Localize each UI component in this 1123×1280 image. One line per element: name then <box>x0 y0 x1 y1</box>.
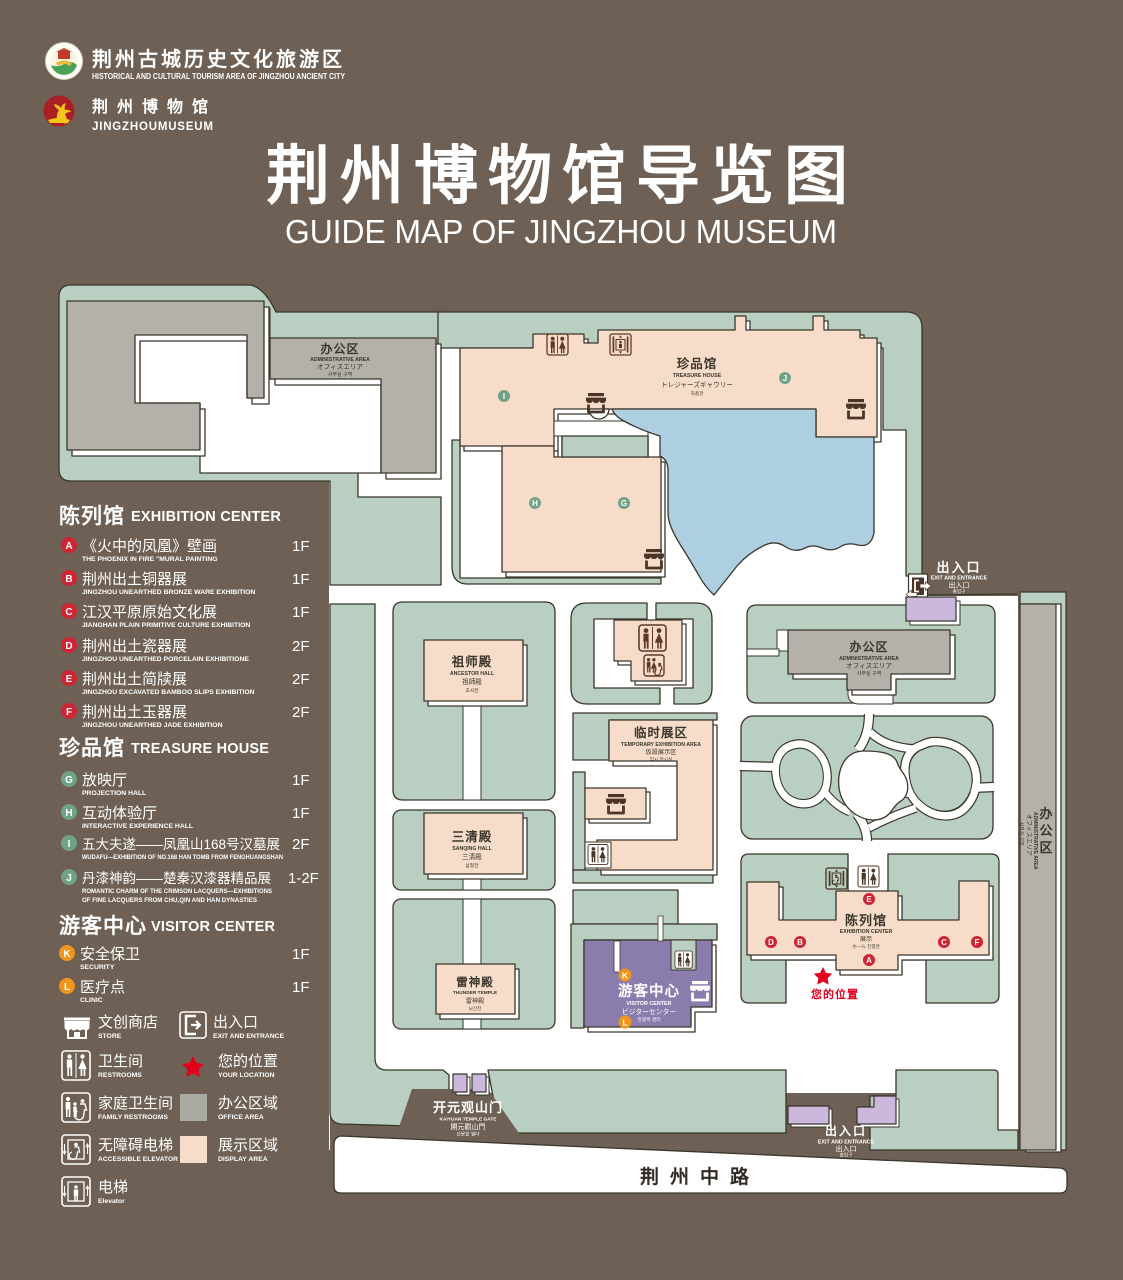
svg-text:ADMINISTRATIVE AREA: ADMINISTRATIVE AREA <box>1032 812 1038 870</box>
svg-text:珍品馆: 珍品馆 <box>677 356 718 371</box>
svg-text:F: F <box>66 707 72 718</box>
svg-text:JINGZHOUMUSEUM: JINGZHOUMUSEUM <box>92 121 214 133</box>
svg-text:JINGZHOU UNEARTHED PORCELAIN E: JINGZHOU UNEARTHED PORCELAIN EXHIBITIONE <box>82 656 249 663</box>
svg-text:1F: 1F <box>292 772 310 789</box>
svg-text:开元观山门: 开元观山门 <box>433 1100 503 1115</box>
svg-text:A: A <box>65 541 72 552</box>
svg-text:EXIT AND ENTRANCE: EXIT AND ENTRANCE <box>213 1033 285 1040</box>
svg-text:荆州博物馆: 荆州博物馆 <box>92 97 217 116</box>
svg-text:出入口: 出入口 <box>825 1123 867 1138</box>
svg-text:SANQING HALL: SANQING HALL <box>452 846 492 852</box>
svg-text:C: C <box>941 938 947 947</box>
svg-text:トレジャーズギャウリー: トレジャーズギャウリー <box>661 380 733 389</box>
svg-text:K: K <box>622 971 629 981</box>
svg-text:KAIYUAN TEMPLE GATE: KAIYUAN TEMPLE GATE <box>440 1117 498 1123</box>
svg-text:ACCESSIBLE ELEVATOR: ACCESSIBLE ELEVATOR <box>98 1156 178 1163</box>
svg-text:G: G <box>621 499 627 508</box>
svg-text:文创商店: 文创商店 <box>98 1014 158 1031</box>
svg-text:ANCESTOR HALL: ANCESTOR HALL <box>450 671 495 677</box>
svg-text:TEMPORARY EXHIBITION AREA: TEMPORARY EXHIBITION AREA <box>621 742 701 748</box>
svg-text:オフィスエリア: オフィスエリア <box>846 662 892 670</box>
svg-text:C: C <box>65 607 72 618</box>
svg-text:J: J <box>783 374 787 383</box>
svg-text:荆州博物馆导览图: 荆州博物馆导览图 <box>266 140 858 212</box>
svg-text:CLINIC: CLINIC <box>80 997 103 1004</box>
svg-text:放映厅: 放映厅 <box>82 772 127 789</box>
svg-text:1F: 1F <box>292 538 310 555</box>
svg-text:INTERACTIVE EXPERIENCE HALL: INTERACTIVE EXPERIENCE HALL <box>82 823 193 830</box>
svg-text:雷神殿: 雷神殿 <box>466 997 485 1005</box>
svg-text:관광객 센터: 관광객 센터 <box>637 1016 660 1023</box>
svg-text:祖師殿: 祖師殿 <box>462 677 482 686</box>
svg-text:您的位置: 您的位置 <box>811 987 859 1001</box>
svg-text:无障碍电梯: 无障碍电梯 <box>98 1136 173 1154</box>
svg-text:2F: 2F <box>292 836 310 853</box>
svg-text:EXIT AND ENTRANCE: EXIT AND ENTRANCE <box>931 576 988 582</box>
svg-text:三清殿: 三清殿 <box>452 829 493 844</box>
svg-text:B: B <box>65 574 72 585</box>
svg-text:展示区域: 展示区域 <box>218 1137 278 1154</box>
svg-text:三清殿: 三清殿 <box>462 852 482 861</box>
svg-text:DISPLAY AREA: DISPLAY AREA <box>218 1156 268 1163</box>
svg-text:荆州出土铜器展: 荆州出土铜器展 <box>82 571 187 588</box>
svg-text:1-2F: 1-2F <box>288 870 319 887</box>
svg-text:区: 区 <box>1039 840 1052 855</box>
svg-text:JINGZHOU EXCAVATED BAMBOO SLIP: JINGZHOU EXCAVATED BAMBOO SLIPS EXHIBITI… <box>82 689 255 696</box>
svg-text:安全保卫: 安全保卫 <box>80 945 140 963</box>
svg-text:EXIT AND ENTRANCE: EXIT AND ENTRANCE <box>818 1140 875 1146</box>
svg-text:뇌신전: 뇌신전 <box>469 1005 482 1012</box>
svg-text:《火中的凤凰》壁画: 《火中的凤凰》壁画 <box>82 538 217 555</box>
svg-text:互动体验厅: 互动体验厅 <box>82 805 157 822</box>
svg-text:출입구: 출입구 <box>840 1152 853 1159</box>
svg-text:2F: 2F <box>292 704 310 721</box>
svg-text:JIANGHAN PLAIN PRIMITIVE CULTU: JIANGHAN PLAIN PRIMITIVE CULTURE EXHIBIT… <box>82 622 250 629</box>
svg-text:TREASURE HOUSE: TREASURE HOUSE <box>673 373 722 379</box>
svg-text:荆州出土简牍展: 荆州出土简牍展 <box>82 671 187 688</box>
svg-text:WUDAFU—EXHIBITION OF NO.168 HA: WUDAFU—EXHIBITION OF NO.168 HAN TOMB FRO… <box>82 854 283 861</box>
svg-text:PROJECTION HALL: PROJECTION HALL <box>82 790 146 797</box>
svg-text:1F: 1F <box>292 571 310 588</box>
svg-text:游客中心: 游客中心 <box>618 982 680 1000</box>
svg-text:1F: 1F <box>292 604 310 621</box>
svg-text:J: J <box>66 873 72 884</box>
svg-text:1F: 1F <box>292 979 310 996</box>
svg-text:ホ―ル 진열관: ホ―ル 진열관 <box>852 943 881 949</box>
svg-text:D: D <box>65 641 72 652</box>
svg-text:JINGZHOU UNEARTHED BRONZE WARE: JINGZHOU UNEARTHED BRONZE WARE EXHIBITIO… <box>82 589 255 596</box>
svg-text:出入口: 出入口 <box>213 1014 258 1031</box>
svg-text:임시 전시실: 임시 전시실 <box>650 756 672 762</box>
svg-text:荆州古城历史文化旅游区: 荆州古城历史文化旅游区 <box>92 47 345 71</box>
svg-text:祖师殿: 祖师殿 <box>451 654 493 669</box>
svg-text:GUIDE MAP OF JINGZHOU MUSEUM: GUIDE MAP OF JINGZHOU MUSEUM <box>285 214 837 251</box>
svg-text:L: L <box>64 982 70 993</box>
svg-text:出入口: 出入口 <box>936 560 981 575</box>
svg-text:G: G <box>65 775 73 786</box>
svg-text:丹漆神韵——楚秦汉漆器精品展: 丹漆神韵——楚秦汉漆器精品展 <box>82 871 271 886</box>
svg-text:EXHIBITION CENTER: EXHIBITION CENTER <box>840 929 893 935</box>
svg-text:ROMANTIC CHARM OF THE CRIMSON: ROMANTIC CHARM OF THE CRIMSON LACQUERS—E… <box>82 888 272 895</box>
svg-text:荆州出土瓷器展: 荆州出土瓷器展 <box>82 638 187 655</box>
svg-text:临时展区: 临时展区 <box>634 725 688 740</box>
svg-text:办公区域: 办公区域 <box>218 1095 278 1112</box>
svg-text:산문을 열다: 산문을 열다 <box>456 1131 480 1138</box>
svg-text:I: I <box>68 839 71 850</box>
svg-text:YOUR LOCATION: YOUR LOCATION <box>218 1072 275 1079</box>
svg-text:THUNDER TEMPLE: THUNDER TEMPLE <box>453 990 498 996</box>
svg-text:卫生间: 卫生间 <box>98 1053 143 1070</box>
svg-text:F: F <box>975 938 980 947</box>
svg-text:江汉平原原始文化展: 江汉平原原始文化展 <box>82 604 217 621</box>
svg-text:I: I <box>503 392 505 401</box>
svg-text:삼청전: 삼청전 <box>465 862 478 869</box>
svg-text:B: B <box>797 938 803 947</box>
svg-text:OFFICE AREA: OFFICE AREA <box>218 1114 264 1121</box>
svg-text:조사전: 조사전 <box>465 687 478 694</box>
svg-text:사무실 구역: 사무실 구역 <box>328 371 352 378</box>
svg-text:HISTORICAL AND CULTURAL TOURIS: HISTORICAL AND CULTURAL TOURISM AREA OF … <box>92 71 345 81</box>
svg-text:L: L <box>622 1018 627 1028</box>
svg-text:Elevator: Elevator <box>98 1198 125 1205</box>
svg-text:A: A <box>866 956 872 965</box>
svg-text:TREASURE HOUSE: TREASURE HOUSE <box>131 741 269 757</box>
svg-text:2F: 2F <box>292 638 310 655</box>
svg-text:您的位置: 您的位置 <box>218 1053 278 1070</box>
svg-text:VISITOR CENTER: VISITOR CENTER <box>626 1001 671 1007</box>
svg-text:ビジターセンター: ビジターセンター <box>622 1007 676 1016</box>
svg-text:H: H <box>532 499 538 508</box>
svg-text:陈列馆: 陈列馆 <box>59 504 125 528</box>
svg-text:STORE: STORE <box>98 1033 122 1040</box>
svg-text:医疗点: 医疗点 <box>80 979 125 996</box>
svg-text:电梯: 电梯 <box>98 1179 128 1196</box>
svg-text:OF FINE LACQUERS FROM CHU,QIN: OF FINE LACQUERS FROM CHU,QIN AND HAN DY… <box>82 897 257 904</box>
svg-text:D: D <box>768 938 774 947</box>
svg-text:荆州出土玉器展: 荆州出土玉器展 <box>82 704 187 721</box>
svg-text:展示: 展示 <box>860 936 872 943</box>
svg-text:1F: 1F <box>292 946 310 963</box>
svg-text:EXHIBITION CENTER: EXHIBITION CENTER <box>131 509 281 525</box>
svg-text:游客中心: 游客中心 <box>59 914 147 938</box>
svg-text:RESTROOMS: RESTROOMS <box>98 1072 142 1079</box>
svg-text:荆州中路: 荆州中路 <box>640 1165 760 1188</box>
svg-text:珍品馆: 珍品馆 <box>59 736 125 760</box>
svg-text:公: 公 <box>1039 823 1052 838</box>
svg-text:THE PHOENIX IN FIRE "MURAL PAI: THE PHOENIX IN FIRE "MURAL PAINTING <box>82 556 218 563</box>
svg-text:FAMILY RESTROOMS: FAMILY RESTROOMS <box>98 1114 168 1121</box>
svg-text:オフィスエリア: オフィスエリア <box>1025 814 1032 856</box>
svg-text:E: E <box>66 674 73 685</box>
svg-text:オフィスエリア: オフィスエリア <box>317 363 363 371</box>
svg-text:1F: 1F <box>292 805 310 822</box>
svg-text:K: K <box>63 949 71 960</box>
svg-text:ADMINISTRATIVE AREA: ADMINISTRATIVE AREA <box>310 357 370 363</box>
svg-text:사무실 구역: 사무실 구역 <box>1018 822 1025 845</box>
svg-text:사무실 구역: 사무실 구역 <box>857 670 881 677</box>
svg-text:陈列馆: 陈列馆 <box>845 913 887 928</box>
svg-text:SECURITY: SECURITY <box>80 964 115 971</box>
svg-text:자품관: 자품관 <box>691 390 704 397</box>
svg-text:출입구: 출입구 <box>953 588 966 595</box>
svg-text:VISITOR CENTER: VISITOR CENTER <box>151 919 276 935</box>
svg-text:H: H <box>65 808 72 819</box>
svg-text:2F: 2F <box>292 671 310 688</box>
svg-text:家庭卫生间: 家庭卫生间 <box>98 1095 173 1112</box>
svg-text:仮設展示区: 仮設展示区 <box>646 748 677 756</box>
svg-text:JINGZHOU UNEARTHED JADE EXHIBI: JINGZHOU UNEARTHED JADE EXHIBITION <box>82 722 223 729</box>
svg-text:办: 办 <box>1039 806 1052 821</box>
svg-text:E: E <box>866 895 872 904</box>
svg-text:開元觀山門: 開元觀山門 <box>451 1122 486 1131</box>
svg-text:五大夫遂——凤凰山168号汉墓展: 五大夫遂——凤凰山168号汉墓展 <box>82 837 280 852</box>
svg-text:ADMINISTRATIVE AREA: ADMINISTRATIVE AREA <box>839 656 899 662</box>
svg-text:办公区: 办公区 <box>849 639 888 654</box>
svg-text:办公区: 办公区 <box>320 341 359 356</box>
svg-text:雷神殿: 雷神殿 <box>456 975 494 989</box>
